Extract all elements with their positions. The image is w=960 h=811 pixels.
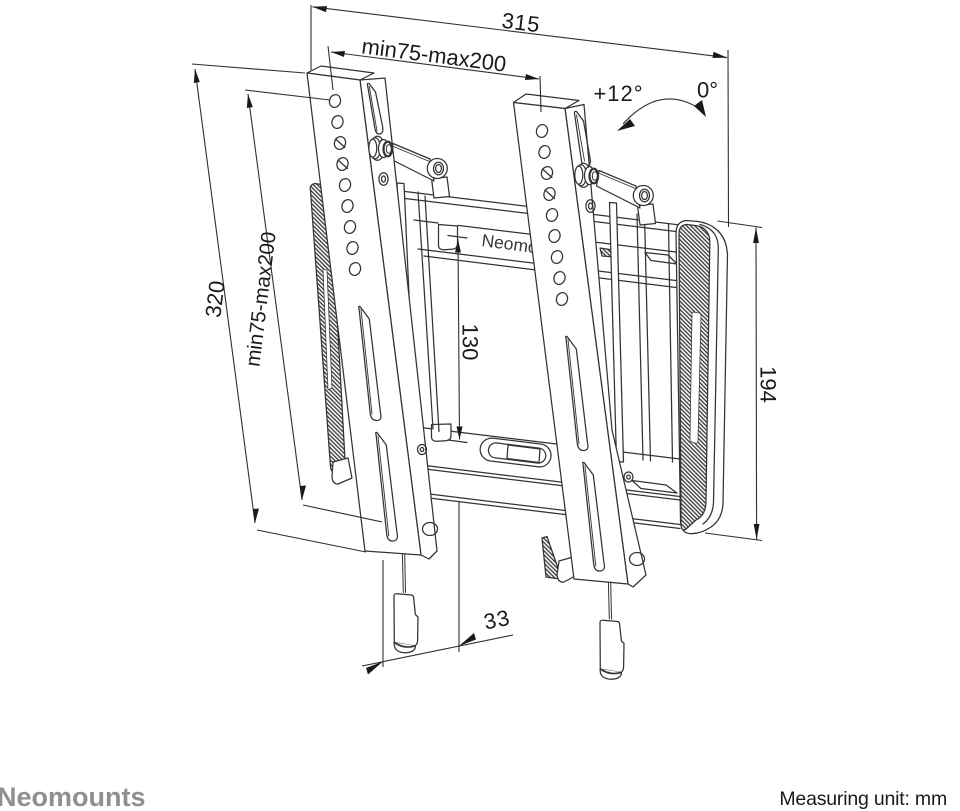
svg-text:Neomounts: Neomounts	[0, 782, 146, 811]
svg-text:315: 315	[500, 8, 541, 37]
svg-text:194: 194	[755, 366, 780, 403]
svg-text:0°: 0°	[697, 78, 718, 103]
svg-text:33: 33	[482, 605, 513, 635]
svg-text:320: 320	[200, 279, 229, 318]
svg-text:+12°: +12°	[593, 81, 643, 106]
svg-text:130: 130	[458, 324, 483, 361]
svg-text:Measuring unit: mm: Measuring unit: mm	[779, 788, 947, 810]
svg-text:min75-max200: min75-max200	[360, 33, 508, 76]
